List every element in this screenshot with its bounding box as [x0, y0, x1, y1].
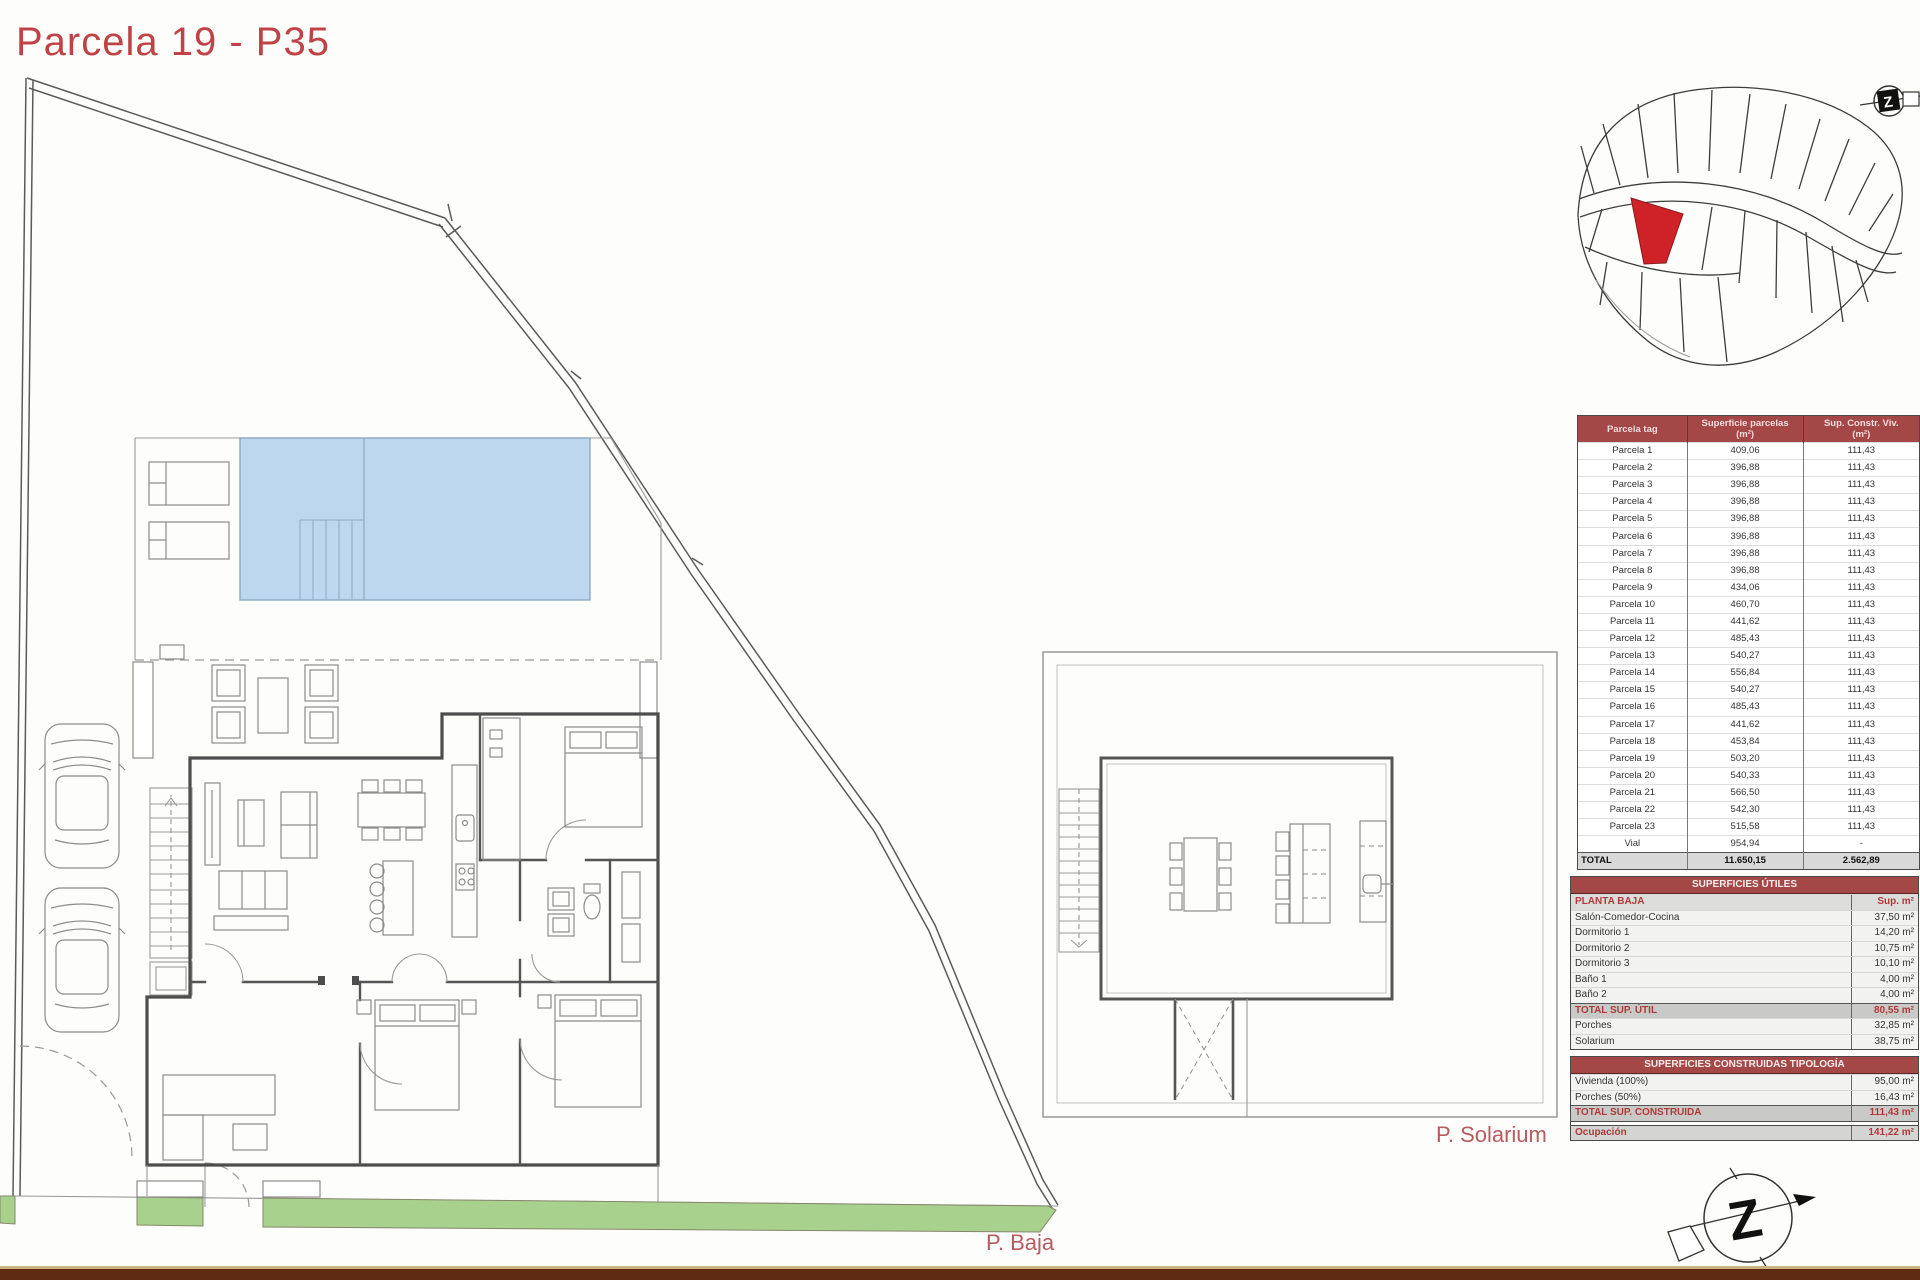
green-strip: [0, 1181, 1056, 1232]
outdoor-furniture: [212, 665, 338, 743]
table-cell: 141,22 m²: [1851, 1126, 1918, 1141]
table-cell: 954,94: [1687, 836, 1803, 853]
exterior-stairs: [150, 788, 192, 995]
table-cell: 503,20: [1687, 750, 1803, 767]
table-cell: 396,88: [1687, 511, 1803, 528]
table-row: Parcela 19503,20111,43: [1578, 750, 1919, 767]
table-row: Parcela 7396,88111,43: [1578, 545, 1919, 562]
table-cell: Parcela 22: [1578, 801, 1687, 818]
table-row: Parcela 11441,62111,43: [1578, 613, 1919, 630]
table-row: Parcela 20540,33111,43: [1578, 767, 1919, 784]
table-cell: 485,43: [1687, 631, 1803, 648]
sun-lounger: [149, 462, 229, 659]
table-title: SUPERFICIES CONSTRUIDAS TIPOLOGÍA: [1571, 1057, 1918, 1074]
table-cell: 396,88: [1687, 528, 1803, 545]
table-cell: Vivienda (100%): [1571, 1075, 1851, 1090]
table-row: Parcela 14556,84111,43: [1578, 665, 1919, 682]
table-cell: 111,43: [1803, 665, 1919, 682]
table-cell: 515,58: [1687, 819, 1803, 836]
table-cell: 14,20 m²: [1851, 926, 1918, 941]
table-cell: Parcela 2: [1578, 460, 1687, 477]
table-cell: Parcela 20: [1578, 767, 1687, 784]
table-cell: Dormitorio 2: [1571, 942, 1851, 957]
table-cell: 111,43: [1803, 819, 1919, 836]
table-row: Parcela 16485,43111,43: [1578, 699, 1919, 716]
table-total-row: TOTAL SUP. CONSTRUIDA 111,43 m²: [1571, 1105, 1918, 1121]
table-cell: 111,43: [1803, 648, 1919, 665]
table-cell: TOTAL SUP. CONSTRUIDA: [1571, 1106, 1851, 1121]
table-cell: 396,88: [1687, 545, 1803, 562]
table-cell: 11.650,15: [1687, 853, 1803, 870]
superficies-utiles-table: SUPERFICIES ÚTILES PLANTA BAJA Sup. m² S…: [1570, 876, 1919, 1050]
column-header: Parcela tag: [1578, 416, 1687, 443]
label-planta-baja: P. Baja: [986, 1230, 1054, 1256]
living-room-furniture: [205, 783, 317, 930]
table-cell: 111,43: [1803, 545, 1919, 562]
table-cell: Parcela 9: [1578, 579, 1687, 596]
table-cell: 4,00 m²: [1851, 973, 1918, 988]
table-cell: 485,43: [1687, 699, 1803, 716]
table-cell: Parcela 14: [1578, 665, 1687, 682]
table-cell: Parcela 16: [1578, 699, 1687, 716]
table-cell: 32,85 m²: [1851, 1019, 1918, 1034]
table-cell: Parcela 12: [1578, 631, 1687, 648]
highlighted-parcel: [1631, 198, 1683, 264]
bathroom-fixtures: [548, 872, 640, 962]
table-cell: 566,50: [1687, 784, 1803, 801]
table-row: Dormitorio 210,75 m²: [1571, 941, 1918, 957]
table-cell: 441,62: [1687, 613, 1803, 630]
table-cell: 540,27: [1687, 682, 1803, 699]
table-cell: 396,88: [1687, 477, 1803, 494]
gate-arcs: [20, 1046, 249, 1207]
table-row: Parcela 3396,88111,43: [1578, 477, 1919, 494]
table-cell: Parcela 19: [1578, 750, 1687, 767]
table-row: Parcela 13540,27111,43: [1578, 648, 1919, 665]
table-cell: 111,43: [1803, 494, 1919, 511]
table-cell: 396,88: [1687, 494, 1803, 511]
label-planta-solarium: P. Solarium: [1436, 1122, 1547, 1148]
table-row: Dormitorio 114,20 m²: [1571, 925, 1918, 941]
table-cell: -: [1803, 836, 1919, 853]
table-cell: Baño 1: [1571, 973, 1851, 988]
table-cell: 111,43: [1803, 579, 1919, 596]
table-row: Porches (50%)16,43 m²: [1571, 1090, 1918, 1106]
table-ocupacion-row: Ocupación 141,22 m²: [1571, 1125, 1918, 1141]
table-cell: 396,88: [1687, 460, 1803, 477]
table-cell: 434,06: [1687, 579, 1803, 596]
table-cell: Parcela 1: [1578, 443, 1687, 460]
svg-text:Z: Z: [1724, 1188, 1767, 1253]
parcelas-table: Parcela tag Superficie parcelas(m²) Sup.…: [1577, 415, 1920, 870]
table-cell: 111,43: [1803, 784, 1919, 801]
table-header-row: Parcela tag Superficie parcelas(m²) Sup.…: [1578, 416, 1919, 443]
table-row: Vivienda (100%)95,00 m²: [1571, 1074, 1918, 1090]
car-icon: [39, 724, 125, 868]
table-cell: 4,00 m²: [1851, 988, 1918, 1003]
interior-stairs: [147, 1165, 658, 1203]
pool: [240, 438, 590, 600]
table-cell: Porches (50%): [1571, 1091, 1851, 1106]
table-cell: Baño 2: [1571, 988, 1851, 1003]
table-title: SUPERFICIES ÚTILES: [1571, 877, 1918, 894]
table-cell: Parcela 13: [1578, 648, 1687, 665]
table-cell: Parcela 7: [1578, 545, 1687, 562]
page-title: Parcela 19 - P35: [16, 20, 330, 65]
table-row: Parcela 17441,62111,43: [1578, 716, 1919, 733]
table-total-row: TOTAL SUP. ÚTIL 80,55 m²: [1571, 1003, 1918, 1019]
table-cell: 16,43 m²: [1851, 1091, 1918, 1106]
drawing-sheet: Z Z Parcela 19 - P35 P. Baja P. Solarium…: [0, 0, 1920, 1280]
table-cell: 409,06: [1687, 443, 1803, 460]
column-header: Superficie parcelas(m²): [1687, 416, 1803, 443]
north-compass-icon: Z: [1668, 1168, 1816, 1268]
site-boundary: [13, 78, 1058, 1208]
table-row: Parcela 23515,58111,43: [1578, 819, 1919, 836]
table-row: Parcela 4396,88111,43: [1578, 494, 1919, 511]
table-cell: Parcela 15: [1578, 682, 1687, 699]
table-row: Parcela 15540,27111,43: [1578, 682, 1919, 699]
table-row: Parcela 21566,50111,43: [1578, 784, 1919, 801]
table-cell: PLANTA BAJA: [1571, 895, 1851, 910]
table-cell: Parcela 17: [1578, 716, 1687, 733]
table-cell: 111,43: [1803, 716, 1919, 733]
table-cell: 38,75 m²: [1851, 1035, 1918, 1050]
table-cell: 111,43 m²: [1851, 1106, 1918, 1121]
table-cell: 111,43: [1803, 682, 1919, 699]
table-cell: Parcela 5: [1578, 511, 1687, 528]
table-row: Solarium38,75 m²: [1571, 1034, 1918, 1050]
table-cell: 111,43: [1803, 596, 1919, 613]
table-cell: Vial: [1578, 836, 1687, 853]
table-cell: Parcela 10: [1578, 596, 1687, 613]
table-subheader-row: PLANTA BAJA Sup. m²: [1571, 894, 1918, 910]
table-cell: Porches: [1571, 1019, 1851, 1034]
table-cell: 111,43: [1803, 528, 1919, 545]
table-cell: Parcela 18: [1578, 733, 1687, 750]
table-cell: 396,88: [1687, 562, 1803, 579]
table-row: Vial954,94-: [1578, 836, 1919, 853]
table-row: Baño 14,00 m²: [1571, 972, 1918, 988]
table-cell: 111,43: [1803, 699, 1919, 716]
compass-icon: Z: [1860, 86, 1920, 116]
table-cell: Dormitorio 1: [1571, 926, 1851, 941]
table-cell: TOTAL SUP. ÚTIL: [1571, 1004, 1851, 1019]
table-cell: 10,75 m²: [1851, 942, 1918, 957]
table-row: Dormitorio 310,10 m²: [1571, 956, 1918, 972]
house-walls: [147, 714, 658, 1165]
table-cell: Parcela 3: [1578, 477, 1687, 494]
table-cell: Parcela 21: [1578, 784, 1687, 801]
table-cell: 10,10 m²: [1851, 957, 1918, 972]
table-cell: 556,84: [1687, 665, 1803, 682]
dining-set: [358, 780, 425, 840]
table-row: Salón-Comedor-Cocina37,50 m²: [1571, 910, 1918, 926]
table-cell: 111,43: [1803, 733, 1919, 750]
table-cell: 80,55 m²: [1851, 1004, 1918, 1019]
table-cell: 111,43: [1803, 750, 1919, 767]
location-minimap: [1578, 87, 1902, 365]
table-cell: 542,30: [1687, 801, 1803, 818]
table-cell: Salón-Comedor-Cocina: [1571, 911, 1851, 926]
table-cell: 111,43: [1803, 511, 1919, 528]
table-cell: 111,43: [1803, 562, 1919, 579]
table-row: Parcela 5396,88111,43: [1578, 511, 1919, 528]
table-cell: Sup. m²: [1851, 895, 1918, 910]
table-row: Parcela 8396,88111,43: [1578, 562, 1919, 579]
superficies-construidas-table: SUPERFICIES CONSTRUIDAS TIPOLOGÍA Vivien…: [1570, 1056, 1919, 1141]
table-cell: 111,43: [1803, 460, 1919, 477]
table-row: Parcela 22542,30111,43: [1578, 801, 1919, 818]
table-row: Parcela 1409,06111,43: [1578, 443, 1919, 460]
table-cell: 453,84: [1687, 733, 1803, 750]
table-cell: Solarium: [1571, 1035, 1851, 1050]
sheet-footer-bar: [0, 1266, 1920, 1280]
table-cell: 111,43: [1803, 801, 1919, 818]
solarium-plan: [1043, 652, 1557, 1117]
table-row: Parcela 18453,84111,43: [1578, 733, 1919, 750]
table-cell: 111,43: [1803, 767, 1919, 784]
table-cell: 441,62: [1687, 716, 1803, 733]
table-row: Parcela 10460,70111,43: [1578, 596, 1919, 613]
table-cell: 540,33: [1687, 767, 1803, 784]
table-cell: Parcela 6: [1578, 528, 1687, 545]
table-cell: 111,43: [1803, 631, 1919, 648]
table-cell: Parcela 8: [1578, 562, 1687, 579]
table-cell: 460,70: [1687, 596, 1803, 613]
table-cell: 95,00 m²: [1851, 1075, 1918, 1090]
table-total-row: TOTAL 11.650,15 2.562,89: [1578, 853, 1919, 870]
table-cell: Parcela 4: [1578, 494, 1687, 511]
table-cell: Parcela 23: [1578, 819, 1687, 836]
table-cell: Ocupación: [1571, 1126, 1851, 1141]
bedroom-furniture: [163, 727, 642, 1160]
table-cell: 111,43: [1803, 477, 1919, 494]
table-cell: 540,27: [1687, 648, 1803, 665]
table-cell: TOTAL: [1578, 853, 1687, 870]
table-row: Porches32,85 m²: [1571, 1018, 1918, 1034]
table-cell: 111,43: [1803, 443, 1919, 460]
table-cell: Dormitorio 3: [1571, 957, 1851, 972]
table-cell: Parcela 11: [1578, 613, 1687, 630]
table-row: Parcela 9434,06111,43: [1578, 579, 1919, 596]
car-icon: [39, 888, 125, 1032]
table-cell: 37,50 m²: [1851, 911, 1918, 926]
table-row: Baño 24,00 m²: [1571, 987, 1918, 1003]
column-header: Sup. Constr. Viv.(m²): [1803, 416, 1919, 443]
table-row: Parcela 2396,88111,43: [1578, 460, 1919, 477]
table-cell: 2.562,89: [1803, 853, 1919, 870]
table-row: Parcela 6396,88111,43: [1578, 528, 1919, 545]
table-cell: 111,43: [1803, 613, 1919, 630]
table-row: Parcela 12485,43111,43: [1578, 631, 1919, 648]
